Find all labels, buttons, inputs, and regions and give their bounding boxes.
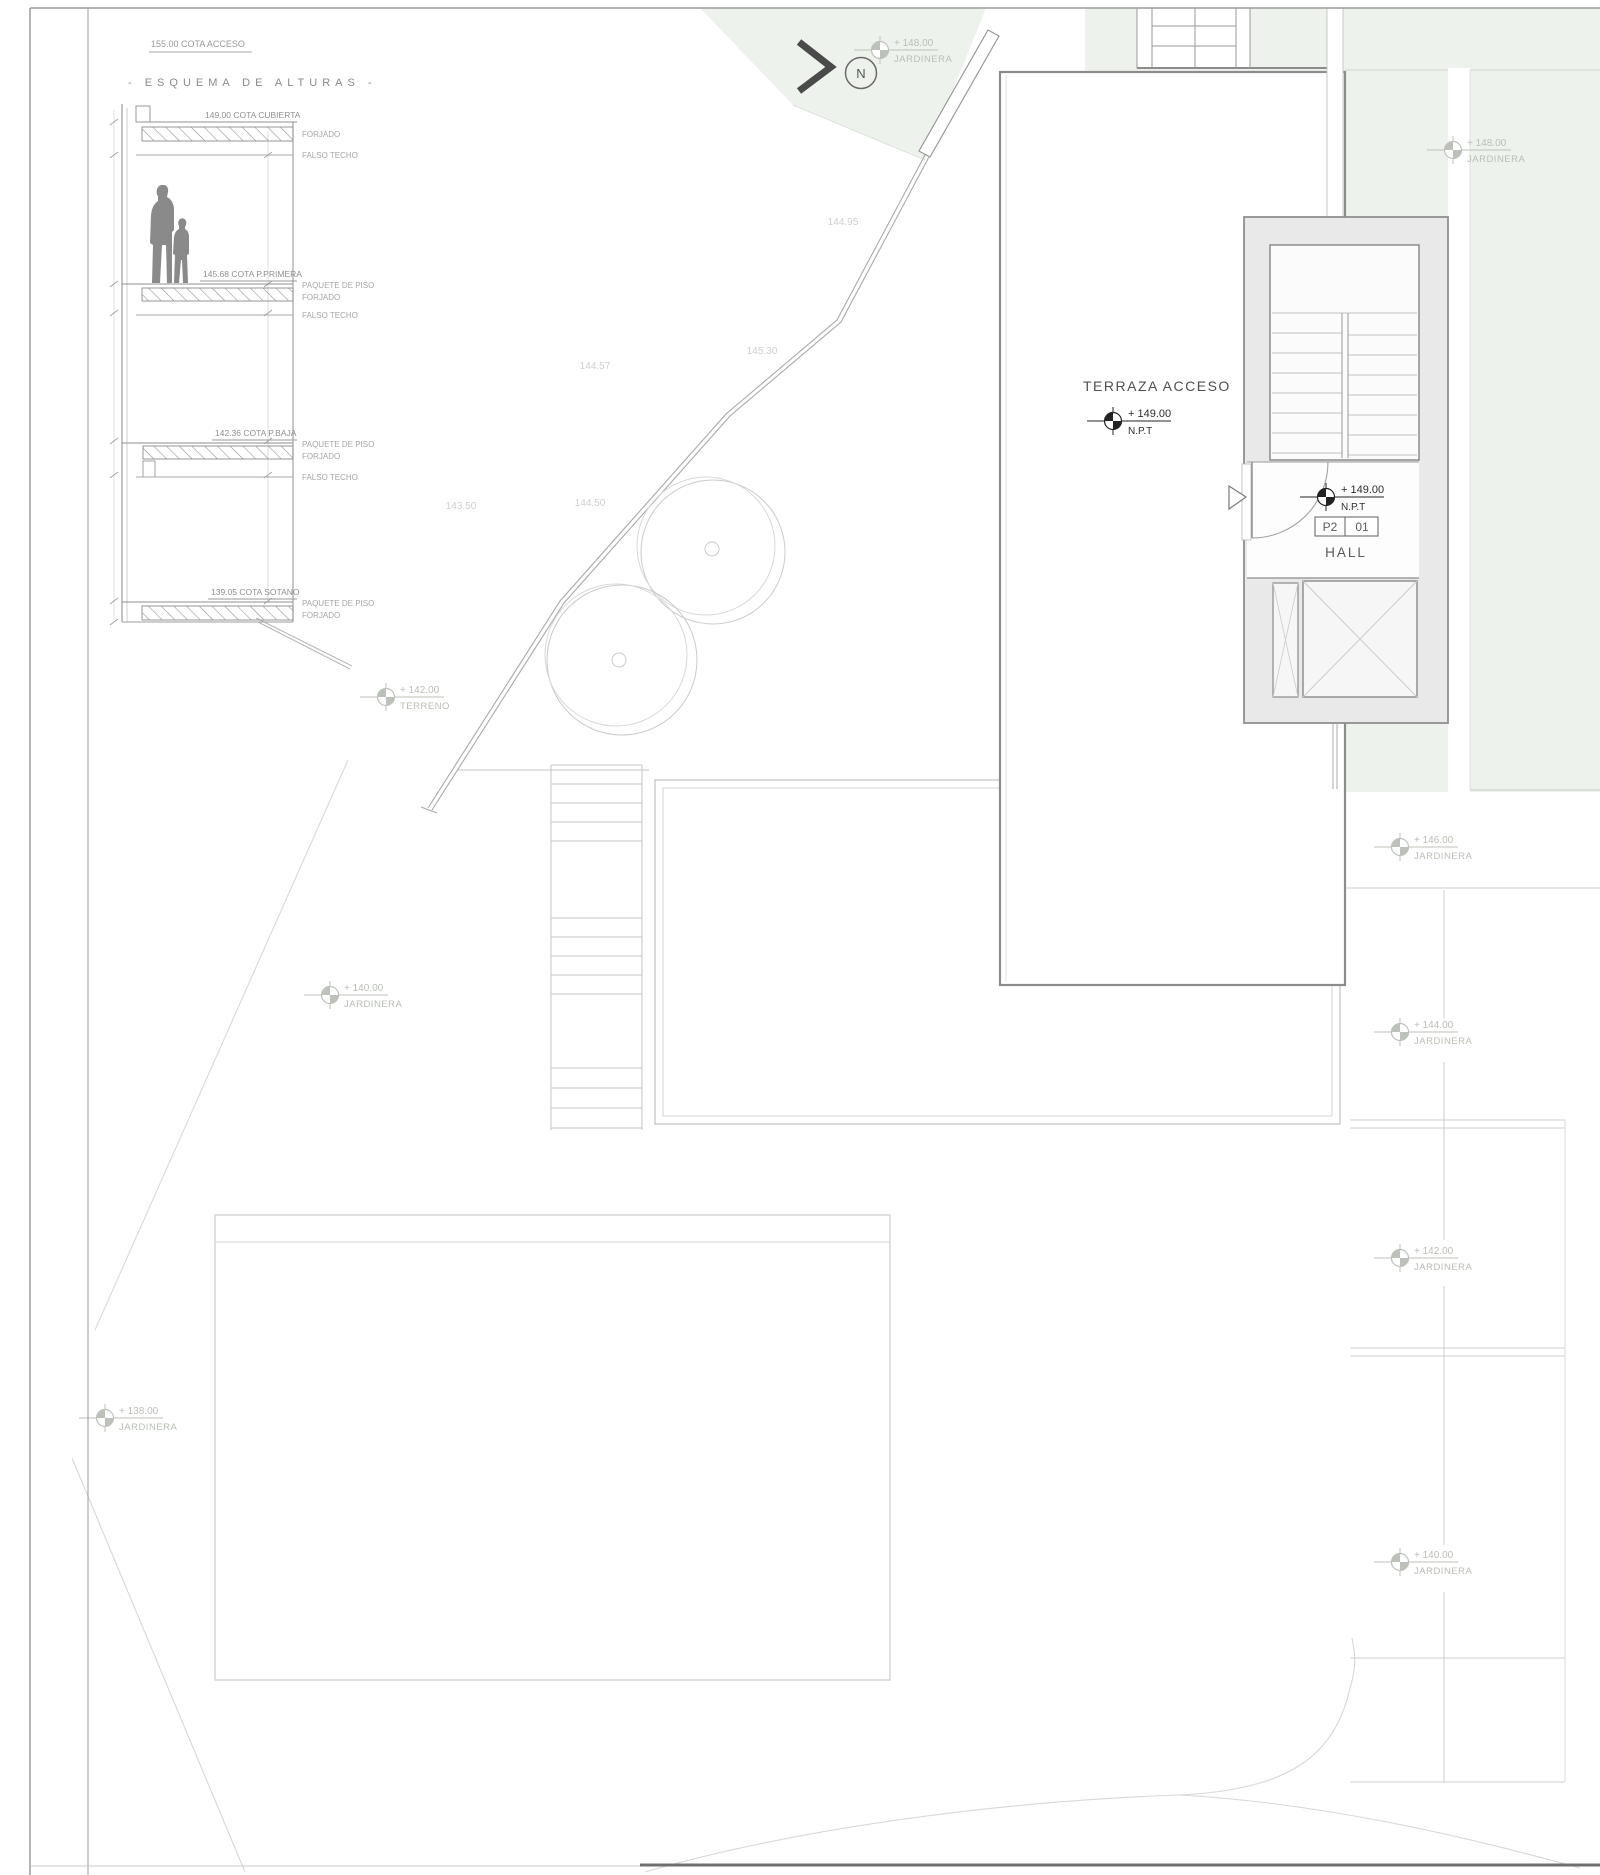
side-walk-strip: [1448, 68, 1470, 792]
slab-label: FORJADO: [302, 452, 340, 461]
marker-label: JARDINERA: [1467, 154, 1526, 165]
slab-label: PAQUETE DE PISO: [302, 440, 374, 449]
door-opening: [1242, 464, 1251, 540]
slab-label: PAQUETE DE PISO: [302, 281, 374, 290]
marker-label: JARDINERA: [1414, 1566, 1473, 1577]
npt-sub: N.P.T: [1341, 502, 1365, 513]
marker-label: JARDINERA: [119, 1422, 178, 1433]
marker-value: + 146.00: [1414, 835, 1454, 846]
parapet: [136, 106, 150, 122]
contour-label: 143.50: [446, 501, 477, 512]
marker-value: + 148.00: [1467, 138, 1507, 149]
marker-label: JARDINERA: [1414, 1036, 1473, 1047]
marker-value: + 142.00: [1414, 1246, 1454, 1257]
contour-labels: 144.95 145.30 144.57 144.50 143.50: [446, 217, 859, 512]
column-stub: [143, 461, 155, 477]
dimension-ticks: [110, 119, 272, 625]
slab-label: FALSO TECHO: [302, 151, 358, 160]
access-level-note: 155.00 COTA ACCESO: [151, 39, 245, 49]
marker-value: + 148.00: [894, 38, 934, 49]
slab-label: FALSO TECHO: [302, 311, 358, 320]
slab-hatch: [142, 606, 293, 620]
marker-value: + 140.00: [1414, 1550, 1454, 1561]
marker-value: + 144.00: [1414, 1020, 1454, 1031]
contour-label: 144.57: [580, 361, 611, 372]
human-figures: [150, 185, 189, 283]
room-tag-number: 01: [1355, 520, 1369, 534]
retaining-wall: [256, 30, 999, 813]
level-cota: 142.36 COTA P.BAJA: [215, 428, 297, 438]
heights-scheme-section: 155.00 COTA ACCESO - ESQUEMA DE ALTURAS …: [110, 39, 377, 625]
architectural-plan-sheet: 144.95 145.30 144.57 144.50 143.50: [0, 0, 1600, 1875]
marker-value: + 142.00: [400, 685, 440, 696]
slab-hatch: [142, 127, 293, 141]
level-cota: 149.00 COTA CUBIERTA: [205, 110, 301, 120]
marker-value: + 140.00: [344, 983, 384, 994]
slab-hatch: [142, 288, 293, 301]
npt-value: + 149.00: [1128, 408, 1171, 420]
slab-label: FORJADO: [302, 293, 340, 302]
slab-label: FORJADO: [302, 130, 340, 139]
marker-label: JARDINERA: [344, 999, 403, 1010]
elevator-shaft: [1273, 581, 1417, 697]
contour-label: 145.30: [747, 346, 778, 357]
marker-label: JARDINERA: [1414, 851, 1473, 862]
north-letter: N: [856, 66, 865, 81]
marker-label: JARDINERA: [894, 54, 953, 65]
room-tag-zone: P2: [1323, 520, 1338, 534]
terrace-label: TERRAZA ACCESO: [1083, 378, 1231, 394]
level-cota: 139.05 COTA SOTANO: [211, 587, 300, 597]
slab-label: FORJADO: [302, 611, 340, 620]
marker-label: JARDINERA: [1414, 1262, 1473, 1273]
marker-value: + 138.00: [119, 1406, 159, 1417]
slab-label: FALSO TECHO: [302, 473, 358, 482]
contour-label: 144.50: [575, 498, 606, 509]
section-title: - ESQUEMA DE ALTURAS -: [128, 77, 377, 89]
garden-terrace-lines: [1345, 790, 1600, 1782]
lower-building-outline: [215, 1215, 890, 1680]
exterior-stair: [458, 765, 649, 1130]
site-plan-drawing: 144.95 145.30 144.57 144.50 143.50: [0, 0, 1600, 1875]
stair-block: [1229, 217, 1448, 789]
contour-label: 144.95: [828, 217, 859, 228]
marker-label: TERRENO: [400, 701, 450, 712]
slab-hatch: [143, 446, 293, 459]
slab-label: PAQUETE DE PISO: [302, 599, 374, 608]
room-name: HALL: [1325, 545, 1367, 560]
npt-sub: N.P.T: [1128, 426, 1152, 437]
tree-symbols: [545, 477, 785, 735]
npt-value: + 149.00: [1341, 484, 1384, 496]
terrain-contour-lines: [72, 760, 1580, 1872]
level-cota: 145.68 COTA P.PRIMERA: [203, 269, 302, 279]
